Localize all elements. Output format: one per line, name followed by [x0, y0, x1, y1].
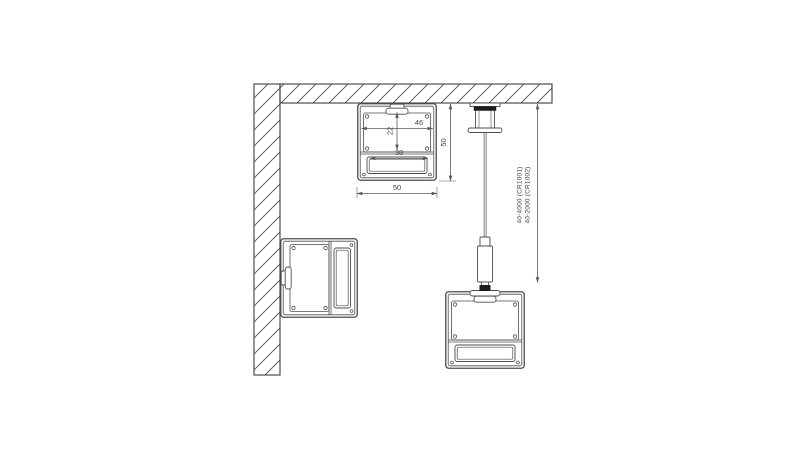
- canopy-body: [476, 111, 495, 129]
- dim-profile-height: 50: [439, 104, 456, 181]
- canopy-flange: [468, 128, 502, 133]
- suspension-code-1-label: 40-4000 (CR1001): [517, 166, 524, 223]
- wall-hatch: [254, 84, 280, 375]
- wall-profile: [281, 239, 358, 318]
- suspension-code-2-label: 40-2000 (CR1002): [525, 166, 532, 223]
- drawing-sheet: 46 22 38 50 50 40-4000 (CR1001) 4: [0, 0, 800, 450]
- mount-black-fitting: [480, 285, 491, 291]
- cable-gripper: [478, 237, 493, 291]
- ceiling-section: [280, 84, 552, 103]
- suspension-mount-plate: [470, 291, 500, 297]
- dim-suspension-drop: 40-4000 (CR1001) 40-2000 (CR1002): [517, 104, 538, 283]
- canopy-black-band: [474, 107, 496, 111]
- dim-inner-height-label: 22: [386, 127, 395, 135]
- ceiling-hatch: [280, 84, 552, 103]
- dim-insert-width-label: 38: [395, 148, 403, 157]
- suspended-profile: [446, 292, 525, 369]
- suspension-cable: [484, 133, 486, 238]
- suspension-kit: [468, 103, 502, 291]
- canopy-plate: [470, 103, 500, 107]
- dim-profile-height-label: 50: [439, 138, 448, 146]
- dim-profile-width: 50: [357, 183, 437, 198]
- wall-section: [254, 84, 280, 375]
- dim-profile-width-label: 50: [393, 183, 401, 192]
- technical-drawing: 46 22 38 50 50 40-4000 (CR1001) 4: [0, 0, 800, 450]
- dim-inner-width-label: 46: [415, 118, 423, 127]
